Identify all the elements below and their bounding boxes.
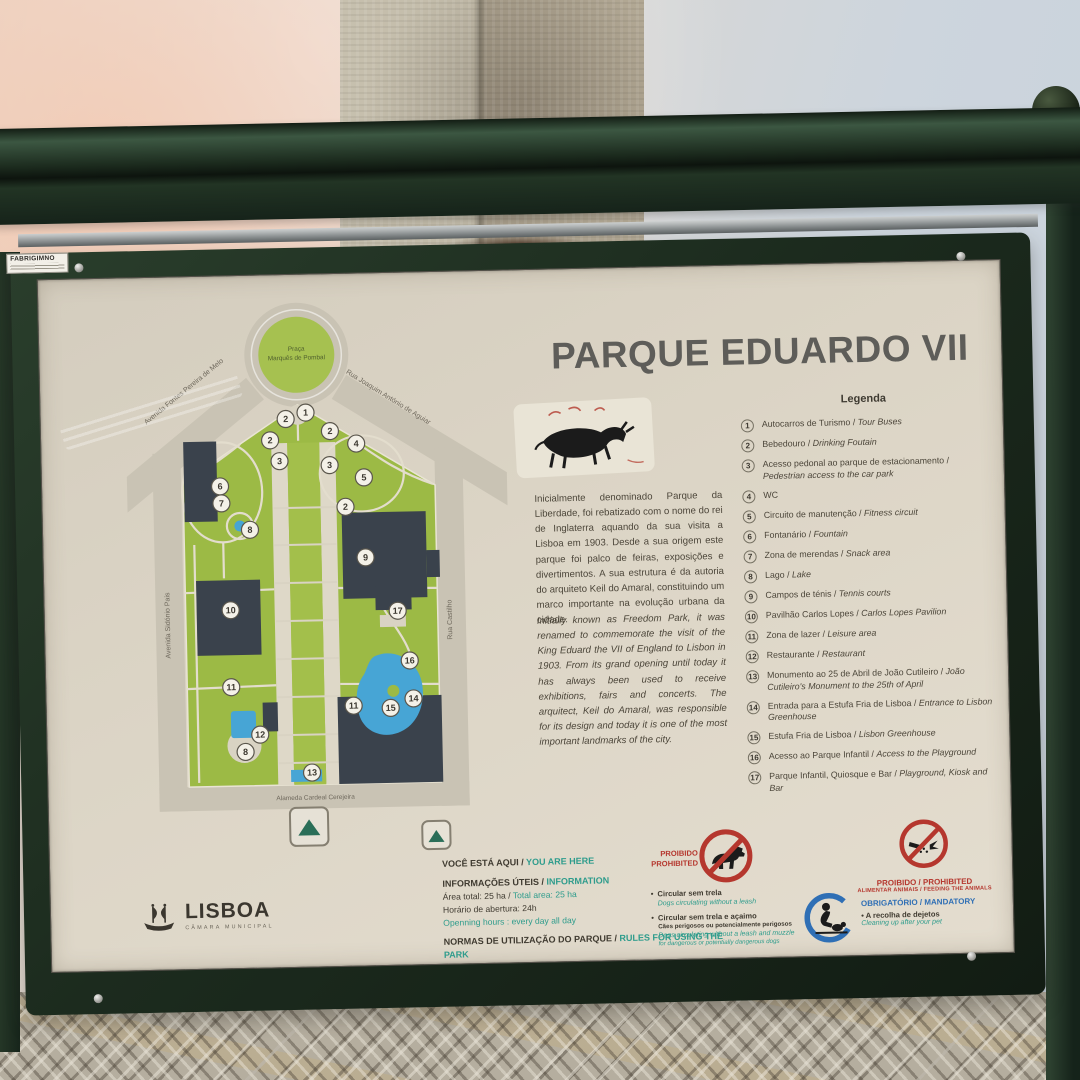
legend-text: Parque Infantil, Quiosque e Bar / Playgr…: [769, 767, 994, 795]
svg-text:2: 2: [327, 426, 332, 436]
legend-item: 2Bebedouro / Drinking Foutain: [741, 434, 987, 452]
legend-item: 10Pavilhão Carlos Lopes / Carlos Lopes P…: [745, 605, 991, 623]
sticker-text: FABRIGIMNO: [10, 255, 64, 263]
triangle-icon: [428, 829, 444, 841]
logo-name: LISBOA: [185, 899, 274, 922]
legend-text: Zona de merendas / Snack area: [764, 547, 890, 562]
legend-text-pt: Fontanário /: [764, 529, 814, 540]
legend-text: Bebedouro / Drinking Foutain: [762, 437, 877, 451]
you-are-here-marker: [289, 806, 330, 847]
svg-text:11: 11: [226, 682, 236, 692]
legend-number: 8: [744, 570, 757, 583]
map-marker-17: 17: [389, 602, 406, 619]
legend-text-en: Lisbon Greenhouse: [859, 728, 936, 740]
legend-item: 1Autocarros de Turismo / Tour Buses: [741, 414, 987, 432]
logo-subtitle: CÂMARA MUNICIPAL: [185, 923, 274, 931]
triangle-icon: [298, 819, 320, 835]
legend-text-en: Tour Buses: [858, 416, 902, 427]
no-dogs-sign: PROIBIDO PROHIBITED •Circular sem trelaD…: [647, 826, 832, 830]
legend-text: Acesso ao Parque Infantil / Access to th…: [769, 747, 977, 763]
lisboa-logo: LISBOA CÂMARA MUNICIPAL: [141, 899, 274, 936]
legend-text: Acesso pedonal ao parque de estacionamen…: [763, 454, 988, 482]
line-en: Total area: 25 ha: [513, 889, 577, 900]
legend-text: Entrada para a Estufa Fria de Lisboa / E…: [768, 696, 993, 724]
you-are-here-marker: [421, 820, 452, 851]
legend-item: 8Lago / Lake: [744, 565, 990, 583]
information-board: FABRIGIMNO: [10, 232, 1046, 1015]
legend-number: 14: [747, 701, 760, 714]
legend-text-en: Snack area: [846, 547, 891, 558]
legend-text-en: Access to the Playground: [876, 747, 976, 759]
map-marker-2: 2: [261, 432, 278, 449]
map-marker-2: 2: [277, 410, 294, 427]
legend-item: 15Estufa Fria de Lisboa / Lisbon Greenho…: [747, 727, 993, 745]
map-marker-3: 3: [321, 456, 338, 473]
line-en: Openning hours : every day all day: [443, 915, 576, 928]
svg-text:2: 2: [283, 414, 288, 424]
svg-text:11: 11: [349, 701, 359, 711]
legend-number: 17: [748, 771, 761, 784]
svg-text:16: 16: [405, 655, 415, 665]
map-marker-16: 16: [401, 652, 418, 669]
legend-item: 5Circuito de manutenção / Fitness circui…: [743, 505, 989, 523]
screw: [94, 994, 103, 1003]
legend-text-pt: Parque Infantil, Quiosque e Bar /: [769, 769, 899, 782]
map-marker-15: 15: [382, 699, 399, 716]
legend-text-pt: Pavilhão Carlos Lopes /: [766, 608, 862, 620]
svg-text:3: 3: [327, 460, 332, 470]
line-en: Don't cut or damage flowers and other pl…: [445, 971, 724, 974]
bullet-en: Dogs circulating without a leash: [658, 897, 757, 908]
legend-text-pt: Campos de ténis /: [765, 588, 839, 600]
legend-number: 10: [745, 610, 758, 623]
map-marker-10: 10: [222, 602, 239, 619]
legend-text-pt: Bebedouro /: [762, 438, 813, 449]
rule-line: Não colha ou danifique flores e plantas …: [444, 969, 736, 973]
svg-text:2: 2: [343, 502, 348, 512]
svg-text:2: 2: [267, 435, 272, 445]
park-title: PARQUE EDUARDO VII: [537, 326, 983, 377]
central-alleys: [271, 442, 342, 785]
legend-text-en: Lake: [792, 569, 811, 579]
legend-number: 16: [748, 751, 761, 764]
legend-number: 13: [746, 670, 759, 683]
legend-text: Zona de lazer / Leisure area: [766, 627, 876, 641]
legend-number: 15: [747, 731, 760, 744]
line-pt: Não pise os canteiros /: [444, 962, 534, 973]
legend-text-pt: Zona de lazer /: [766, 628, 827, 639]
sign-panel: Avenida Fontes Pereira de Melo Rua Joaqu…: [37, 259, 1015, 973]
svg-text:13: 13: [307, 767, 317, 777]
legend-text-en: Restaurant: [822, 648, 865, 659]
legend-text: Circuito de manutenção / Fitness circuit: [764, 507, 918, 522]
legend-item: 14Entrada para a Estufa Fria de Lisboa /…: [747, 696, 993, 725]
legend-text: Estufa Fria de Lisboa / Lisbon Greenhous…: [768, 728, 935, 743]
legend-text-en: Fountain: [813, 528, 847, 539]
screw: [74, 263, 83, 272]
map-marker-14: 14: [405, 690, 422, 707]
legend-text: Lago / Lake: [765, 569, 811, 582]
screw: [967, 952, 976, 961]
svg-text:4: 4: [354, 439, 359, 449]
map-marker-3: 3: [271, 452, 288, 469]
svg-text:6: 6: [217, 481, 222, 491]
legend-item: 11Zona de lazer / Leisure area: [745, 625, 991, 643]
svg-text:17: 17: [393, 606, 403, 616]
street-label-sidonio: Avenida Sidónio Pais: [164, 592, 172, 659]
map-marker-2: 2: [321, 422, 338, 439]
map-marker-5: 5: [355, 469, 372, 486]
svg-text:12: 12: [255, 730, 265, 740]
legend-text: WC: [763, 489, 778, 501]
legend-item: 12Restaurante / Restaurant: [746, 645, 992, 663]
prohibited-label: PROIBIDO PROHIBITED: [646, 848, 698, 870]
legend-header: Legenda: [740, 390, 986, 407]
legend-text-pt: Restaurante /: [767, 649, 822, 660]
legend-number: 2: [741, 439, 754, 452]
legend-text-pt: Estufa Fria de Lisboa /: [768, 729, 859, 741]
ship-icon: [141, 901, 178, 936]
legend-item: 13Monumento ao 25 de Abril de João Cutil…: [746, 665, 992, 694]
legend: Legenda 1Autocarros de Turismo / Tour Bu…: [740, 390, 994, 802]
legend-number: 9: [744, 590, 757, 603]
legend-text: Campos de ténis / Tennis courts: [765, 587, 891, 601]
legend-item: 6Fontanário / Fountain: [743, 525, 989, 543]
legend-number: 11: [745, 630, 758, 643]
legend-item: 9Campos de ténis / Tennis courts: [744, 585, 990, 603]
bull-sketch-graffiti: [508, 393, 662, 484]
map-marker-2: 2: [337, 498, 354, 515]
sign-post-right: [1046, 118, 1080, 1080]
logo-text: LISBOA CÂMARA MUNICIPAL: [185, 899, 274, 931]
bullet-dot: •: [651, 913, 655, 948]
svg-text:8: 8: [243, 747, 248, 757]
legend-text: Fontanário / Fountain: [764, 528, 848, 542]
no-dogs-icon: [697, 827, 754, 884]
svg-text:1: 1: [303, 408, 308, 418]
line-pt: Área total: 25 ha /: [443, 890, 513, 901]
map-marker-4: 4: [348, 435, 365, 452]
svg-text:14: 14: [408, 693, 418, 703]
map-marker-8: 8: [237, 743, 254, 760]
legend-text-en: Drinking Foutain: [813, 437, 877, 448]
legend-number: 3: [742, 459, 755, 472]
bullet-dot: •: [651, 889, 654, 908]
legend-number: 4: [742, 490, 755, 503]
legend-text: Restaurante / Restaurant: [767, 648, 866, 662]
legend-item: 4WC: [742, 485, 988, 503]
legend-number: 12: [746, 650, 759, 663]
legend-text-pt: Zona de merendas /: [764, 548, 845, 560]
description-english: Initially known as Freedom Park, it was …: [537, 610, 728, 750]
legend-number: 7: [744, 550, 757, 563]
legend-text-en: Tennis courts: [839, 587, 891, 598]
legend-number: 1: [741, 419, 754, 432]
street-label-castilho: Rua Castilho: [446, 599, 454, 639]
map-marker-7: 7: [213, 495, 230, 512]
line-en: Don't step on the flowerbeds: [534, 959, 643, 971]
mandatory-icon: [803, 891, 856, 944]
svg-text:Marquês de Pombal: Marquês de Pombal: [268, 354, 325, 362]
svg-text:8: 8: [247, 525, 252, 535]
legend-text-en: Leisure area: [827, 627, 876, 638]
legend-text-pt: Circuito de manutenção /: [764, 508, 864, 520]
svg-text:10: 10: [226, 605, 236, 615]
legend-text-en: Fitness circuit: [864, 507, 918, 518]
legend-text-pt: Entrada para a Estufa Fria de Lisboa /: [768, 697, 919, 710]
svg-text:9: 9: [363, 552, 368, 562]
legend-text: Pavilhão Carlos Lopes / Carlos Lopes Pav…: [766, 606, 947, 622]
map-marker-1: 1: [297, 404, 314, 421]
map-marker-12: 12: [252, 726, 269, 743]
legend-text-en: Pedestrian access to the car park: [763, 468, 894, 481]
legend-item: 3Acesso pedonal ao parque de estacioname…: [742, 454, 988, 483]
legend-text-en: Carlos Lopes Pavilion: [861, 606, 946, 618]
map-marker-8: 8: [241, 521, 258, 538]
svg-text:Praça: Praça: [288, 346, 305, 353]
legend-text-pt: Lago /: [765, 569, 792, 580]
legend-item: 7Zona de merendas / Snack area: [744, 545, 990, 563]
map-marker-11: 11: [345, 697, 362, 714]
mandatory-text: OBRIGATÓRIO / MANDATORY • A recolha de d…: [861, 897, 976, 927]
svg-text:7: 7: [219, 498, 224, 508]
legend-item: 16Acesso ao Parque Infantil / Access to …: [748, 747, 994, 765]
svg-text:5: 5: [361, 472, 366, 482]
map-marker-13: 13: [303, 764, 320, 781]
sticker-lines: [10, 263, 64, 270]
map-marker-6: 6: [211, 478, 228, 495]
legend-text: Autocarros de Turismo / Tour Buses: [762, 416, 902, 431]
park-map: Avenida Fontes Pereira de Melo Rua Joaqu…: [123, 288, 514, 841]
legend-text-pt: WC: [763, 489, 778, 499]
bullet-text: Circular sem trelaDogs circulating witho…: [657, 887, 756, 908]
svg-text:3: 3: [277, 456, 282, 466]
legend-text-pt: Acesso pedonal ao parque de estacionamen…: [763, 455, 950, 469]
legend-text-pt: Acesso ao Parque Infantil /: [769, 749, 877, 761]
legend-text-pt: Autocarros de Turismo /: [762, 417, 858, 429]
legend-number: 5: [743, 510, 756, 523]
no-feeding-icon: [897, 817, 950, 870]
line-pt: Horário de abertura: 24h: [443, 903, 537, 915]
legend-list: 1Autocarros de Turismo / Tour Buses2Bebe…: [741, 414, 995, 795]
manufacturer-sticker: FABRIGIMNO: [6, 253, 68, 274]
bullet-text: Circular sem trela e açaimoCães perigoso…: [658, 910, 795, 947]
map-marker-9: 9: [357, 549, 374, 566]
map-marker-11: 11: [223, 679, 240, 696]
no-feeding-sign: PROIBIDO / PROHIBITED ALIMENTAR ANIMAIS …: [839, 816, 1009, 895]
legend-number: 6: [743, 530, 756, 543]
description-portuguese: Inicialmente denominado Parque da Liberd…: [534, 488, 725, 628]
svg-text:15: 15: [386, 703, 396, 713]
legend-text: Monumento ao 25 de Abril de João Cutilei…: [767, 665, 992, 693]
legend-item: 17Parque Infantil, Quiosque e Bar / Play…: [748, 767, 994, 796]
